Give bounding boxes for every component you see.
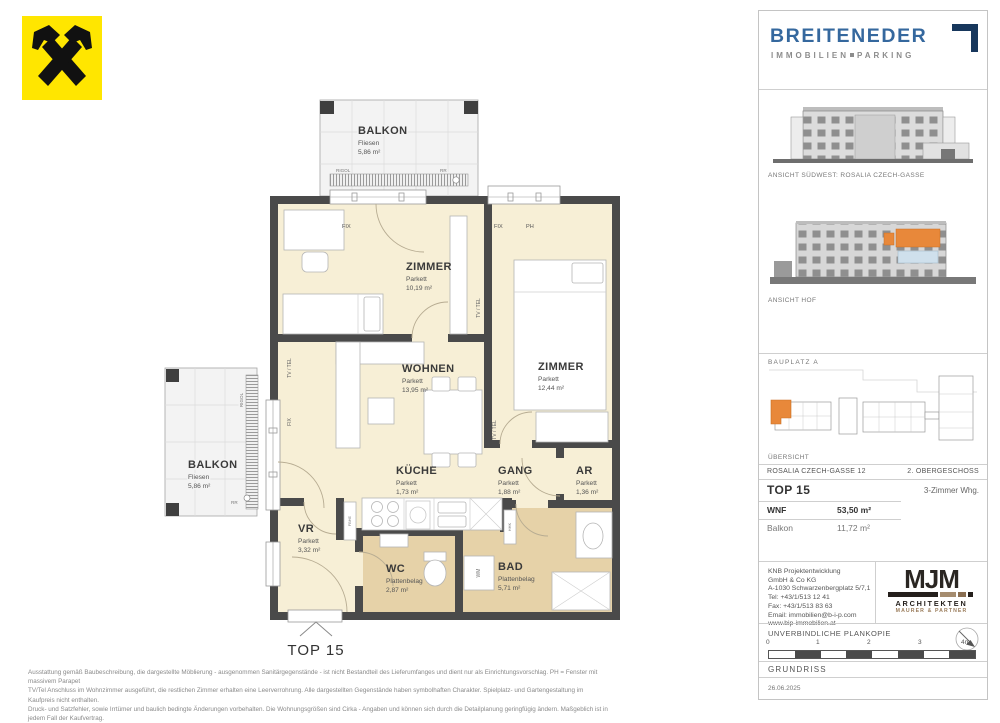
balcony-left: RIGOL RR BALKON Fliesen 5,86 m² bbox=[165, 368, 258, 516]
stove-burner bbox=[388, 502, 399, 513]
elevation-hof-drawing bbox=[768, 215, 978, 291]
disclaimer-line: Ausstattung gemäß Baubeschreibung, die d… bbox=[28, 668, 608, 686]
siteplan-drawing bbox=[767, 368, 979, 444]
dining-chair bbox=[458, 453, 476, 467]
rigol-label: RIGOL bbox=[239, 392, 244, 407]
toilet-bowl bbox=[424, 560, 446, 586]
ph-label: PH bbox=[526, 224, 534, 230]
brand-block: BREITENEDER IMMOBILIENPARKING bbox=[759, 11, 987, 90]
room-area: 1,88 m² bbox=[498, 489, 521, 496]
siteplan-label: BAUPLATZ A bbox=[759, 354, 987, 366]
tagline-square-icon bbox=[850, 53, 854, 57]
coffee-table bbox=[368, 398, 394, 424]
wardrobe-zimmer2 bbox=[536, 412, 608, 442]
room-floor: Parkett bbox=[576, 480, 597, 487]
sofa-side bbox=[336, 342, 360, 448]
scale-tick: 3 bbox=[918, 639, 922, 646]
kitchen-counter bbox=[362, 498, 502, 530]
room-area: 13,95 m² bbox=[402, 387, 429, 394]
developer-line: Tel: +43/1/513 12 41 bbox=[768, 594, 872, 603]
desk bbox=[284, 210, 344, 250]
date-row: 26.06.2025 bbox=[759, 676, 987, 699]
room-area: 5,71 m² bbox=[498, 585, 521, 592]
elevation-suedwest: ANSICHT SÜDWEST: ROSALIA CZECH-GASSE bbox=[759, 89, 987, 183]
rr-label: RR bbox=[231, 500, 238, 505]
developer-line: Fax: +43/1/513 83 63 bbox=[768, 603, 872, 612]
rigol-label: RIGOL bbox=[336, 168, 351, 173]
developer-line: Email: immobilien@b-i-p.com bbox=[768, 612, 872, 621]
drainage-channel bbox=[246, 375, 258, 509]
room-area: 10,19 m² bbox=[406, 285, 433, 292]
fix-label: FIX bbox=[342, 224, 351, 230]
room-name: BALKON bbox=[358, 125, 407, 137]
elevation-suedwest-drawing bbox=[773, 101, 973, 165]
hhk-label: HHK bbox=[507, 522, 512, 531]
room-floor: Parkett bbox=[538, 376, 559, 383]
elevation-hof-caption: ANSICHT HOF bbox=[759, 297, 987, 304]
tv-tel-label: TV / TEL bbox=[476, 298, 482, 318]
wnf-label: WNF bbox=[767, 505, 837, 515]
fbhe-label: FBHE bbox=[348, 515, 352, 526]
pillow bbox=[364, 297, 380, 331]
balcony-post bbox=[320, 101, 334, 114]
room-floor: Plattenbelag bbox=[386, 578, 423, 585]
room-floor: Plattenbelag bbox=[498, 576, 535, 583]
stove-burner bbox=[372, 502, 383, 513]
stove-burner bbox=[388, 516, 399, 527]
brand-corner-icon bbox=[952, 24, 978, 52]
room-area: 2,87 m² bbox=[386, 587, 409, 594]
rainpipe-icon bbox=[244, 495, 250, 501]
unit-row: TOP 15 3-Zimmer Whg. bbox=[759, 479, 987, 501]
pillow bbox=[572, 263, 603, 283]
room-name: VR bbox=[298, 523, 314, 535]
tv-tel-label: TV / TEL bbox=[287, 358, 293, 378]
wm-label: WM bbox=[476, 569, 482, 578]
elevation-hof: ANSICHT HOF bbox=[759, 183, 987, 353]
room-floor: Parkett bbox=[396, 480, 417, 487]
scale-tick: 2 bbox=[867, 639, 871, 646]
scale-tick: 4m bbox=[961, 639, 970, 646]
date-label: 26.06.2025 bbox=[759, 676, 987, 692]
disclaimer-line: Druck- und Satzfehler, sowie Irrtümer un… bbox=[28, 705, 608, 723]
disclaimer-line: TV/Tel Anschluss im Wohnzimmer ausgeführ… bbox=[28, 686, 608, 704]
fix-label: FIX bbox=[494, 224, 503, 230]
balcony-post bbox=[166, 369, 179, 382]
floor-label: 2. OBERGESCHOSS bbox=[907, 468, 979, 475]
window-zimmer2 bbox=[488, 186, 560, 204]
scale-tick: 1 bbox=[816, 639, 820, 646]
room-area: 1,73 m² bbox=[396, 489, 419, 496]
room-name: KÜCHE bbox=[396, 464, 437, 477]
stove-burner bbox=[372, 516, 383, 527]
room-floor: Parkett bbox=[298, 538, 319, 545]
room-area: 1,36 m² bbox=[576, 489, 599, 496]
architects-logo-block: MJM ARCHITEKTEN MAURER & PARTNER bbox=[875, 562, 987, 624]
balcony-post bbox=[166, 503, 179, 516]
room-floor: Parkett bbox=[498, 480, 519, 487]
balcony-label: Balkon bbox=[767, 523, 837, 533]
rr-label: RR bbox=[440, 168, 447, 173]
room-floor: Parkett bbox=[402, 378, 423, 385]
contact-block: KNB Projektentwicklung GmbH & Co KG A-10… bbox=[759, 561, 987, 624]
unit-type-label: 3-Zimmer Whg. bbox=[924, 486, 979, 495]
balcony-post bbox=[464, 101, 478, 114]
room-name: BALKON bbox=[188, 459, 237, 471]
room-area: 5,86 m² bbox=[358, 149, 381, 156]
room-name: ZIMMER bbox=[406, 261, 452, 273]
room-name: AR bbox=[576, 465, 593, 477]
wnf-value: 53,50 m² bbox=[837, 505, 871, 515]
disclaimer: Ausstattung gemäß Baubeschreibung, die d… bbox=[28, 668, 608, 723]
room-floor: Fliesen bbox=[358, 140, 380, 147]
dining-chair bbox=[458, 377, 476, 391]
mjm-bar-icon bbox=[888, 592, 976, 597]
room-name: WC bbox=[386, 563, 405, 575]
sink bbox=[438, 516, 466, 527]
entrance-marker bbox=[300, 622, 332, 636]
tagline-immobilien: IMMOBILIEN bbox=[771, 51, 849, 60]
room-floor: Fliesen bbox=[188, 474, 210, 481]
unit-label: TOP 15 bbox=[767, 483, 810, 497]
balcony-row: Balkon 11,72 m² bbox=[759, 519, 987, 537]
siteplan-caption: ÜBERSICHT bbox=[759, 454, 809, 461]
address-row: ROSALIA CZECH-GASSE 12 2. OBERGESCHOSS bbox=[759, 463, 987, 480]
balcony-top: RIGOL RR BALKON Fliesen 5,86 m² bbox=[320, 100, 478, 196]
dining-table bbox=[424, 390, 482, 454]
washbasin bbox=[583, 523, 603, 549]
floor-plan: RIGOL RR BALKON Fliesen 5,86 m² RIGOL RR… bbox=[0, 0, 750, 706]
tagline-parking: PARKING bbox=[857, 51, 914, 60]
developer-line: A-1030 Schwarzenbergplatz 5/7,1 bbox=[768, 585, 872, 594]
wardrobe-zimmer1 bbox=[450, 216, 467, 334]
wnf-row: WNF 53,50 m² bbox=[759, 501, 987, 519]
room-name: WOHNEN bbox=[402, 363, 455, 375]
mjm-logo: MJM bbox=[876, 567, 987, 591]
elevation-suedwest-caption: ANSICHT SÜDWEST: ROSALIA CZECH-GASSE bbox=[759, 172, 987, 179]
developer-address: KNB Projektentwicklung GmbH & Co KG A-10… bbox=[759, 562, 872, 629]
developer-line: KNB Projektentwicklung bbox=[768, 568, 872, 577]
room-area: 12,44 m² bbox=[538, 385, 565, 392]
sidebar-panel: BREITENEDER IMMOBILIENPARKING ANSICHT SÜ… bbox=[758, 10, 988, 700]
plan-unit-label: TOP 15 bbox=[287, 642, 344, 659]
balcony-value: 11,72 m² bbox=[837, 523, 870, 533]
siteplan-block: BAUPLATZ A ÜBERSICHT bbox=[759, 353, 987, 465]
scale-tick: 0 bbox=[766, 639, 770, 646]
room-area: 3,32 m² bbox=[298, 547, 321, 554]
tv-tel-label: TV / TEL bbox=[492, 420, 498, 440]
architects-line2: MAURER & PARTNER bbox=[876, 608, 987, 614]
entrance-opening bbox=[288, 610, 342, 622]
architects-line1: ARCHITEKTEN bbox=[876, 599, 987, 608]
chair bbox=[302, 252, 328, 272]
scale-bar bbox=[768, 650, 976, 659]
developer-line: GmbH & Co KG bbox=[768, 577, 872, 586]
room-floor: Parkett bbox=[406, 276, 427, 283]
street-label: ROSALIA CZECH-GASSE 12 bbox=[767, 468, 866, 475]
dining-chair bbox=[432, 377, 450, 391]
drawing-type-label: GRUNDRISS bbox=[759, 662, 987, 674]
room-name: ZIMMER bbox=[538, 361, 584, 373]
room-name: BAD bbox=[498, 561, 523, 573]
room-name: GANG bbox=[498, 465, 533, 477]
rainpipe-icon bbox=[453, 177, 459, 183]
fix-label: FIX bbox=[287, 417, 293, 425]
sink-basin bbox=[410, 507, 426, 523]
room-area: 5,86 m² bbox=[188, 483, 211, 490]
sink bbox=[438, 502, 466, 513]
drainage-channel bbox=[330, 174, 468, 186]
wc-handbasin bbox=[380, 534, 408, 547]
scale-bar-block: 0 1 2 3 4m bbox=[759, 639, 987, 661]
